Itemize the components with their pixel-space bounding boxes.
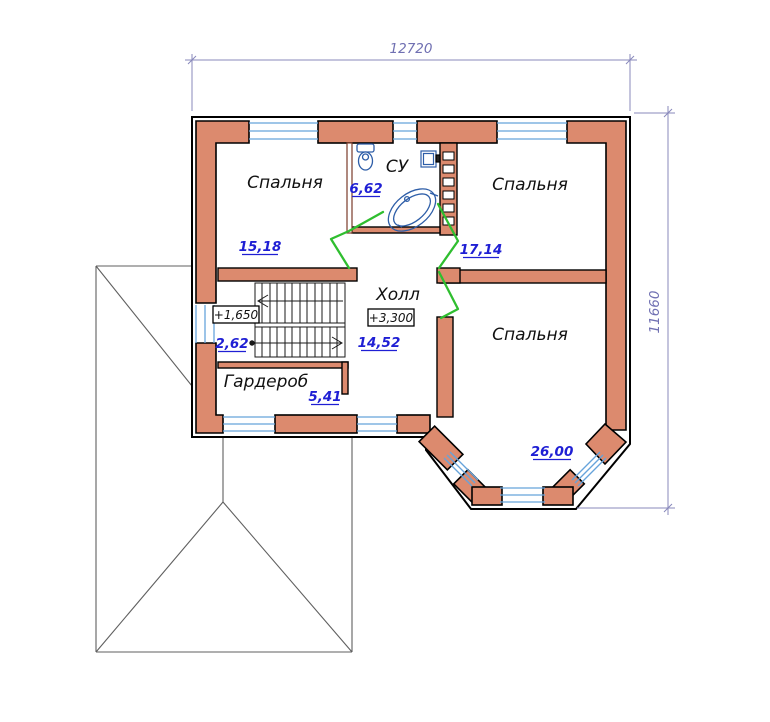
room-label-bedroom2: Спальня <box>492 175 568 195</box>
area-bedroom1: 15,18 <box>239 239 282 255</box>
area-wardrobe: 5,41 <box>308 389 341 405</box>
level-mark-hall: +3,300 <box>368 309 414 326</box>
floor-plan-page: 12720 11660 +1,650 +3,300 Спальня СУ Спа… <box>0 0 770 722</box>
room-label-bedroom1: Спальня <box>247 173 323 193</box>
room-label-wardrobe: Гардероб <box>224 372 309 392</box>
area-bedroom3: 26,00 <box>531 444 574 460</box>
dimension-top <box>185 54 637 111</box>
toilet-symbol <box>357 144 374 170</box>
area-bedroom2: 17,14 <box>460 242 503 258</box>
stair-flights-symbol <box>250 283 345 357</box>
dimension-width-value: 12720 <box>390 41 433 57</box>
area-hall: 14,52 <box>358 335 401 351</box>
dimension-height-value: 11660 <box>647 291 663 334</box>
floor-plan-canvas: 12720 11660 +1,650 +3,300 Спальня СУ Спа… <box>0 0 770 722</box>
room-label-hall: Холл <box>375 285 420 305</box>
area-bathroom: 6,62 <box>349 181 382 197</box>
room-label-bathroom: СУ <box>386 157 410 177</box>
svg-text:+3,300: +3,300 <box>369 311 414 325</box>
area-stairs: 2,62 <box>215 336 248 352</box>
svg-text:+1,650: +1,650 <box>214 308 259 322</box>
level-mark-stairs: +1,650 <box>213 306 259 323</box>
room-label-bedroom3: Спальня <box>492 325 568 345</box>
